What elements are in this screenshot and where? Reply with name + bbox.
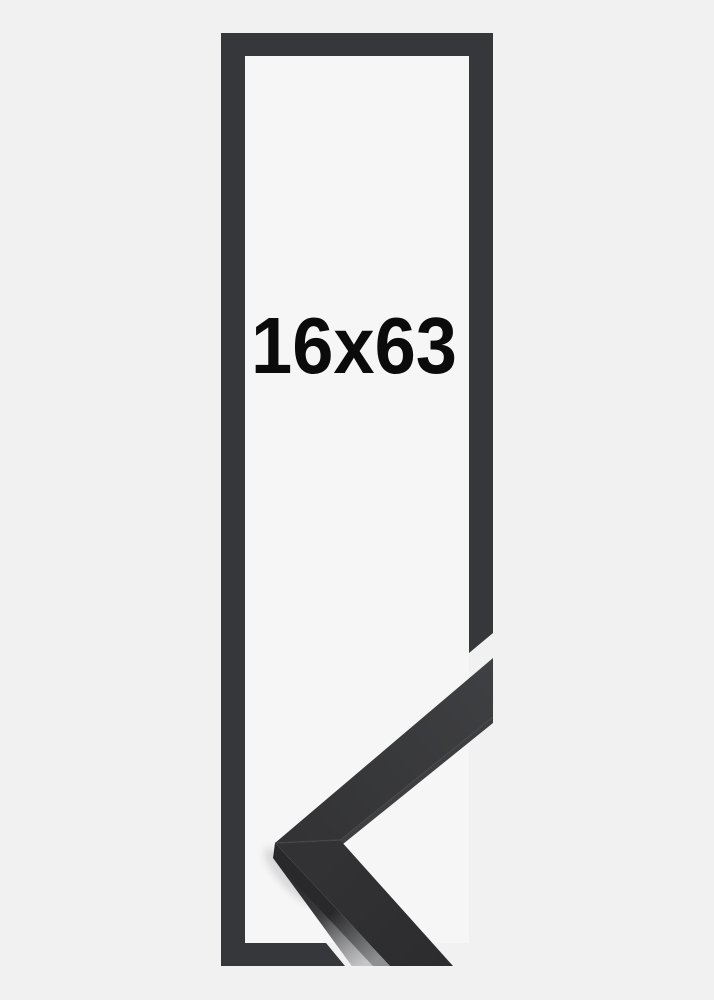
- frame-outline-left-bar: [221, 33, 245, 966]
- size-label: 16x63: [251, 301, 457, 390]
- frame-product-graphic: 16x63: [0, 0, 714, 1000]
- frame-outline-top-bar: [221, 33, 493, 56]
- frame-outline-right-bar: [469, 33, 493, 653]
- product-image-canvas: 16x63: [0, 0, 714, 1000]
- frame-outline-bottom-bar: [221, 943, 345, 966]
